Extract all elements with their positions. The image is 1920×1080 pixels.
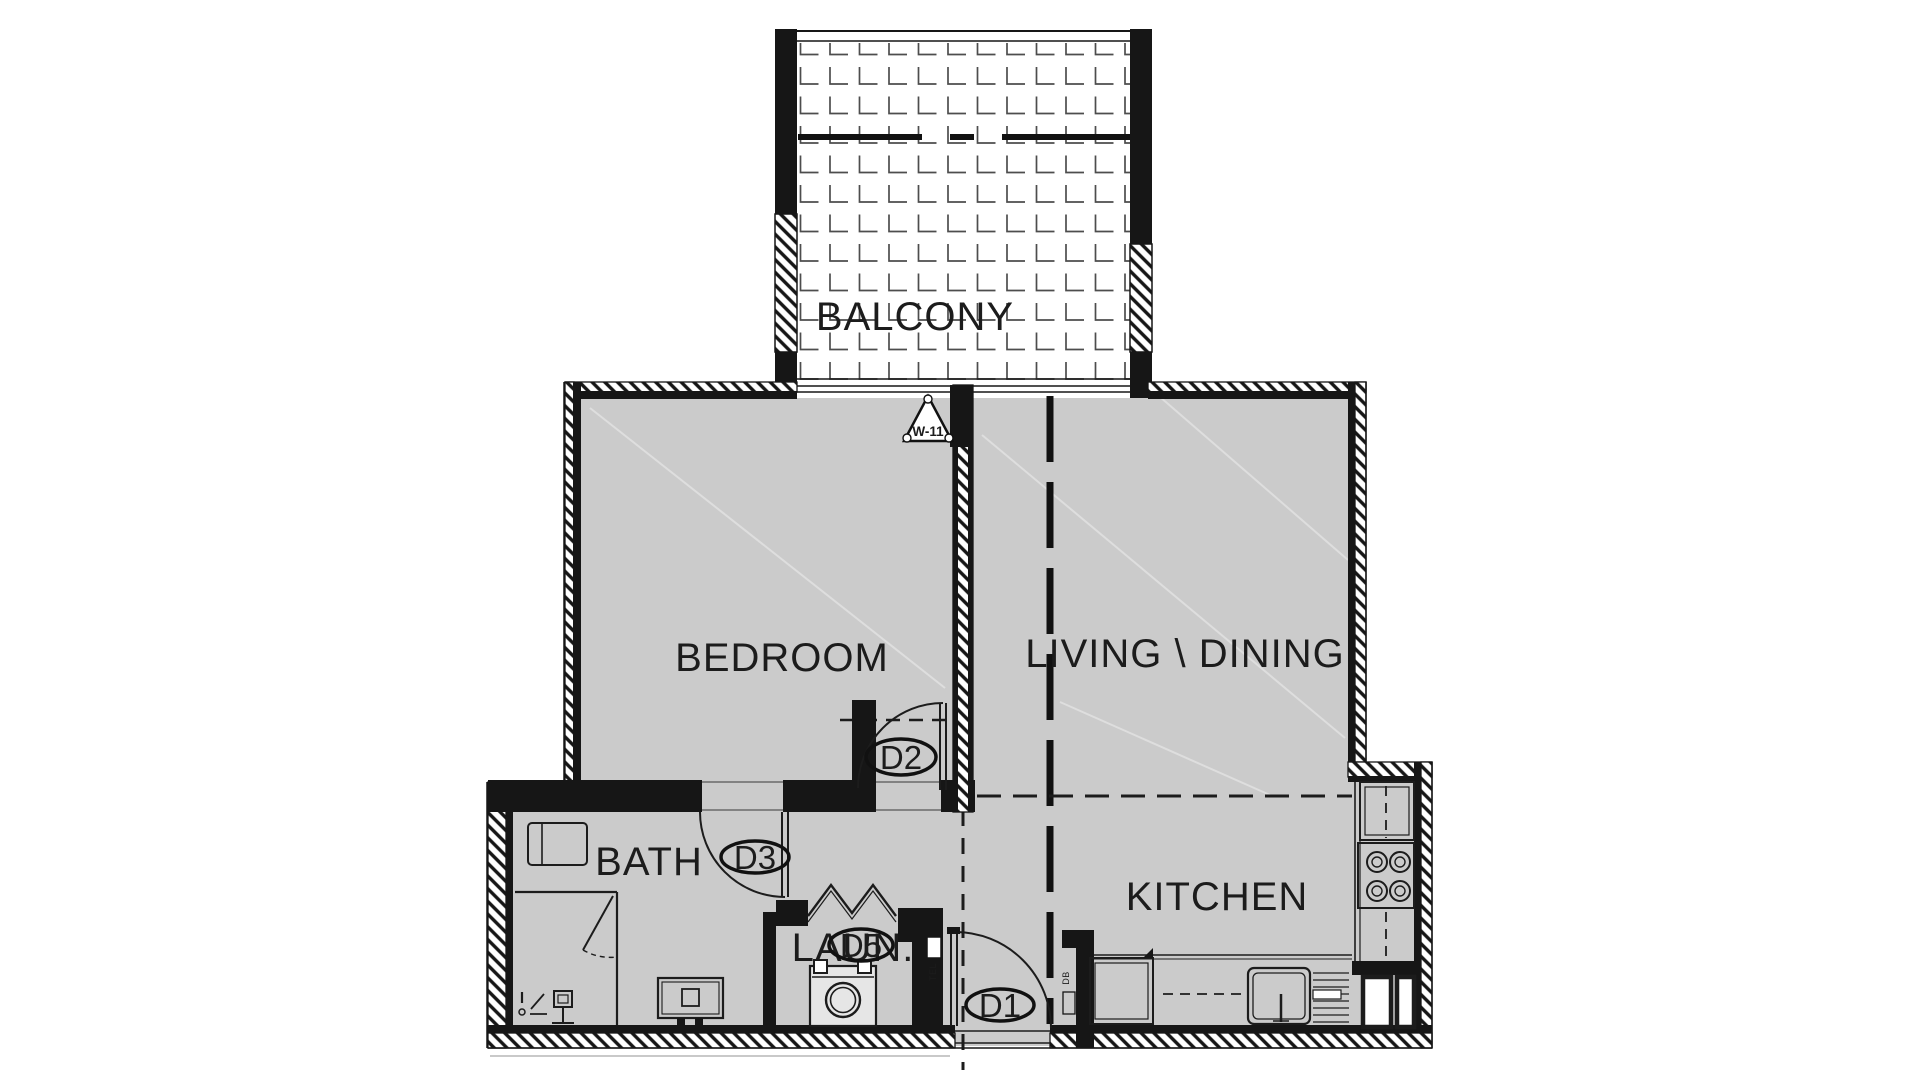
d2-opening-floor xyxy=(876,780,941,812)
living-top-wall-hatch xyxy=(1148,382,1366,392)
bath-left-wall-hatch xyxy=(488,782,506,1048)
kitchen-divider-wall xyxy=(1352,961,1417,975)
door-tag-d1-label: D1 xyxy=(979,987,1021,1024)
floor-plan-drawing: W-11 D2 D3 D1 BALCONY BEDROOM LIVING \ D… xyxy=(0,0,1920,1080)
bedroom-left-wall-hatch xyxy=(565,382,574,791)
bedroom-label: BEDROOM xyxy=(675,636,889,680)
door-tag-d5-label: D5 xyxy=(840,927,882,964)
partition-wall-edge-left xyxy=(953,385,958,812)
door-tag-d3-label: D3 xyxy=(734,839,776,876)
bottom-wall-left-black xyxy=(488,1025,955,1033)
bedroom-floor xyxy=(581,398,953,782)
floor-plan-canvas: W-11 D2 D3 D1 BALCONY BEDROOM LIVING \ D… xyxy=(0,0,1920,1080)
bottom-wall-left-hatch xyxy=(488,1033,955,1048)
window-tag-w11-label: W-11 xyxy=(912,424,944,439)
bottom-wall-right-hatch xyxy=(1050,1033,1432,1048)
kitchen-closet xyxy=(1363,977,1414,1027)
kitchen-right-wall-hatch xyxy=(1421,762,1432,1048)
laundry-top-left-block xyxy=(776,900,808,926)
bedroom-top-wall-hatch xyxy=(565,382,797,392)
db-label: DB xyxy=(1061,971,1071,985)
balcony-left-wall xyxy=(775,29,797,398)
tel-label: TEL xyxy=(928,963,938,981)
bedroom-left-wall-black xyxy=(573,382,581,791)
balcony-right-wall xyxy=(1130,29,1152,398)
laundry-left-wall xyxy=(763,912,776,1030)
balcony xyxy=(775,29,1152,398)
living-right-wall-black xyxy=(1348,382,1355,762)
d3-opening-floor xyxy=(700,780,785,812)
living-floor xyxy=(973,398,1348,814)
bath-label: BATH xyxy=(595,840,703,884)
kitchen-label: KITCHEN xyxy=(1126,875,1309,919)
living-right-wall-hatch xyxy=(1355,382,1366,762)
living-dining-label: LIVING \ DINING xyxy=(1025,632,1345,676)
bedroom-top-wall-black xyxy=(565,391,797,399)
living-top-wall-black xyxy=(1148,391,1366,399)
balcony-label: BALCONY xyxy=(816,295,1014,339)
tel-niche xyxy=(927,937,941,958)
bath-left-wall-black xyxy=(506,782,513,1048)
mid-wall-a xyxy=(488,780,700,812)
door-tag-d2-label: D2 xyxy=(880,739,922,776)
partition-wall-edge-right xyxy=(968,385,973,812)
